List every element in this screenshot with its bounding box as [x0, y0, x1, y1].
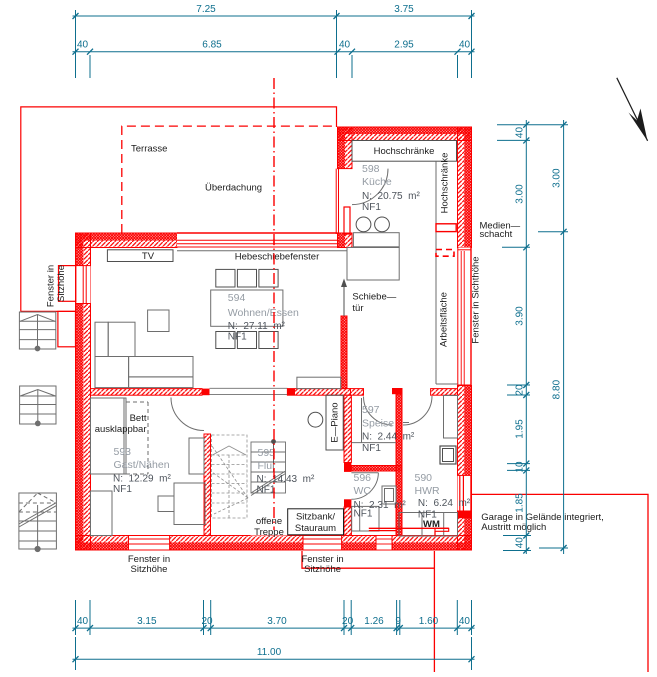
svg-text:E—Piano: E—Piano	[330, 402, 341, 442]
svg-text:WC: WC	[354, 485, 372, 497]
svg-text:N: 12.29 m²: N: 12.29 m²	[113, 474, 171, 485]
svg-text:40: 40	[459, 40, 471, 51]
svg-text:3.00: 3.00	[552, 168, 563, 188]
svg-text:Flur: Flur	[258, 460, 277, 472]
svg-text:3.15: 3.15	[137, 616, 157, 627]
svg-text:NF1: NF1	[362, 443, 381, 454]
svg-text:3.70: 3.70	[267, 616, 287, 627]
svg-text:Arbeitsfläche: Arbeitsfläche	[439, 292, 450, 347]
svg-text:Speise: Speise	[362, 418, 394, 430]
svg-text:1.26: 1.26	[364, 616, 384, 627]
svg-text:Hochschränke: Hochschränke	[374, 146, 435, 157]
svg-text:595: 595	[258, 447, 276, 459]
svg-text:Gast/Nähen: Gast/Nähen	[114, 459, 170, 471]
svg-text:NF1: NF1	[257, 485, 276, 496]
svg-text:Wohnen/Essen: Wohnen/Essen	[228, 307, 299, 319]
svg-text:schacht: schacht	[480, 229, 513, 240]
svg-text:590: 590	[415, 472, 433, 484]
svg-text:N: 2.44 m²: N: 2.44 m²	[362, 432, 415, 443]
svg-text:593: 593	[114, 446, 132, 458]
svg-text:7.25: 7.25	[196, 4, 216, 15]
svg-text:596: 596	[354, 472, 372, 484]
svg-text:6.85: 6.85	[202, 40, 222, 51]
svg-text:Treppe: Treppe	[254, 527, 284, 538]
svg-text:Sitzbank/: Sitzbank/	[296, 512, 335, 523]
svg-text:Sitzhöhe: Sitzhöhe	[304, 564, 341, 575]
svg-text:Bett: Bett	[130, 413, 147, 424]
svg-text:Küche: Küche	[362, 176, 392, 188]
svg-text:Sitzhöhe: Sitzhöhe	[56, 265, 67, 302]
svg-text:11.00: 11.00	[257, 647, 282, 658]
svg-text:NF1: NF1	[113, 484, 132, 495]
svg-text:8.80: 8.80	[552, 379, 563, 399]
svg-text:Terrasse: Terrasse	[131, 144, 167, 155]
svg-text:40: 40	[339, 40, 351, 51]
svg-text:594: 594	[228, 292, 246, 304]
svg-text:N: 27.11 m²: N: 27.11 m²	[228, 321, 286, 332]
svg-text:1.95: 1.95	[514, 419, 525, 439]
svg-text:N: 6.24 m²: N: 6.24 m²	[418, 498, 471, 509]
svg-text:3.75: 3.75	[394, 4, 414, 15]
svg-text:NF1: NF1	[228, 332, 247, 343]
svg-text:3.90: 3.90	[514, 306, 525, 326]
svg-text:Überdachung: Überdachung	[205, 183, 262, 194]
svg-text:1.85: 1.85	[514, 493, 525, 513]
svg-text:40: 40	[514, 127, 525, 139]
svg-text:Sitzhöhe: Sitzhöhe	[131, 564, 168, 575]
svg-text:TV: TV	[142, 251, 155, 262]
svg-text:ausklappbar: ausklappbar	[95, 424, 147, 435]
svg-text:N: 14.43 m²: N: 14.43 m²	[257, 474, 315, 485]
svg-text:40: 40	[77, 40, 89, 51]
svg-text:offene: offene	[256, 516, 282, 527]
svg-text:N: 20.75 m²: N: 20.75 m²	[362, 191, 420, 202]
svg-text:1.60: 1.60	[419, 616, 439, 627]
svg-text:NF1: NF1	[362, 202, 381, 213]
svg-text:Fenster in Sichthöhe: Fenster in Sichthöhe	[471, 256, 482, 343]
svg-text:NF1: NF1	[354, 509, 373, 520]
svg-text:40: 40	[77, 616, 89, 627]
svg-text:Schiebe—: Schiebe—	[352, 292, 396, 303]
svg-text:NF1: NF1	[418, 510, 437, 521]
svg-text:HWR: HWR	[415, 485, 440, 497]
svg-text:Stauraum: Stauraum	[295, 523, 336, 534]
svg-text:tür: tür	[352, 303, 363, 314]
svg-text:20: 20	[514, 384, 525, 396]
svg-text:Hochschränke: Hochschränke	[440, 153, 451, 214]
svg-text:3.00: 3.00	[514, 184, 525, 204]
svg-text:598: 598	[362, 163, 380, 175]
svg-text:2.95: 2.95	[394, 40, 414, 51]
svg-text:40: 40	[514, 537, 525, 549]
svg-text:Austritt möglich: Austritt möglich	[481, 522, 546, 533]
svg-text:40: 40	[459, 616, 471, 627]
svg-text:Fenster in: Fenster in	[46, 265, 57, 307]
svg-text:Hebeschiebefenster: Hebeschiebefenster	[235, 252, 320, 263]
svg-text:597: 597	[362, 404, 380, 416]
